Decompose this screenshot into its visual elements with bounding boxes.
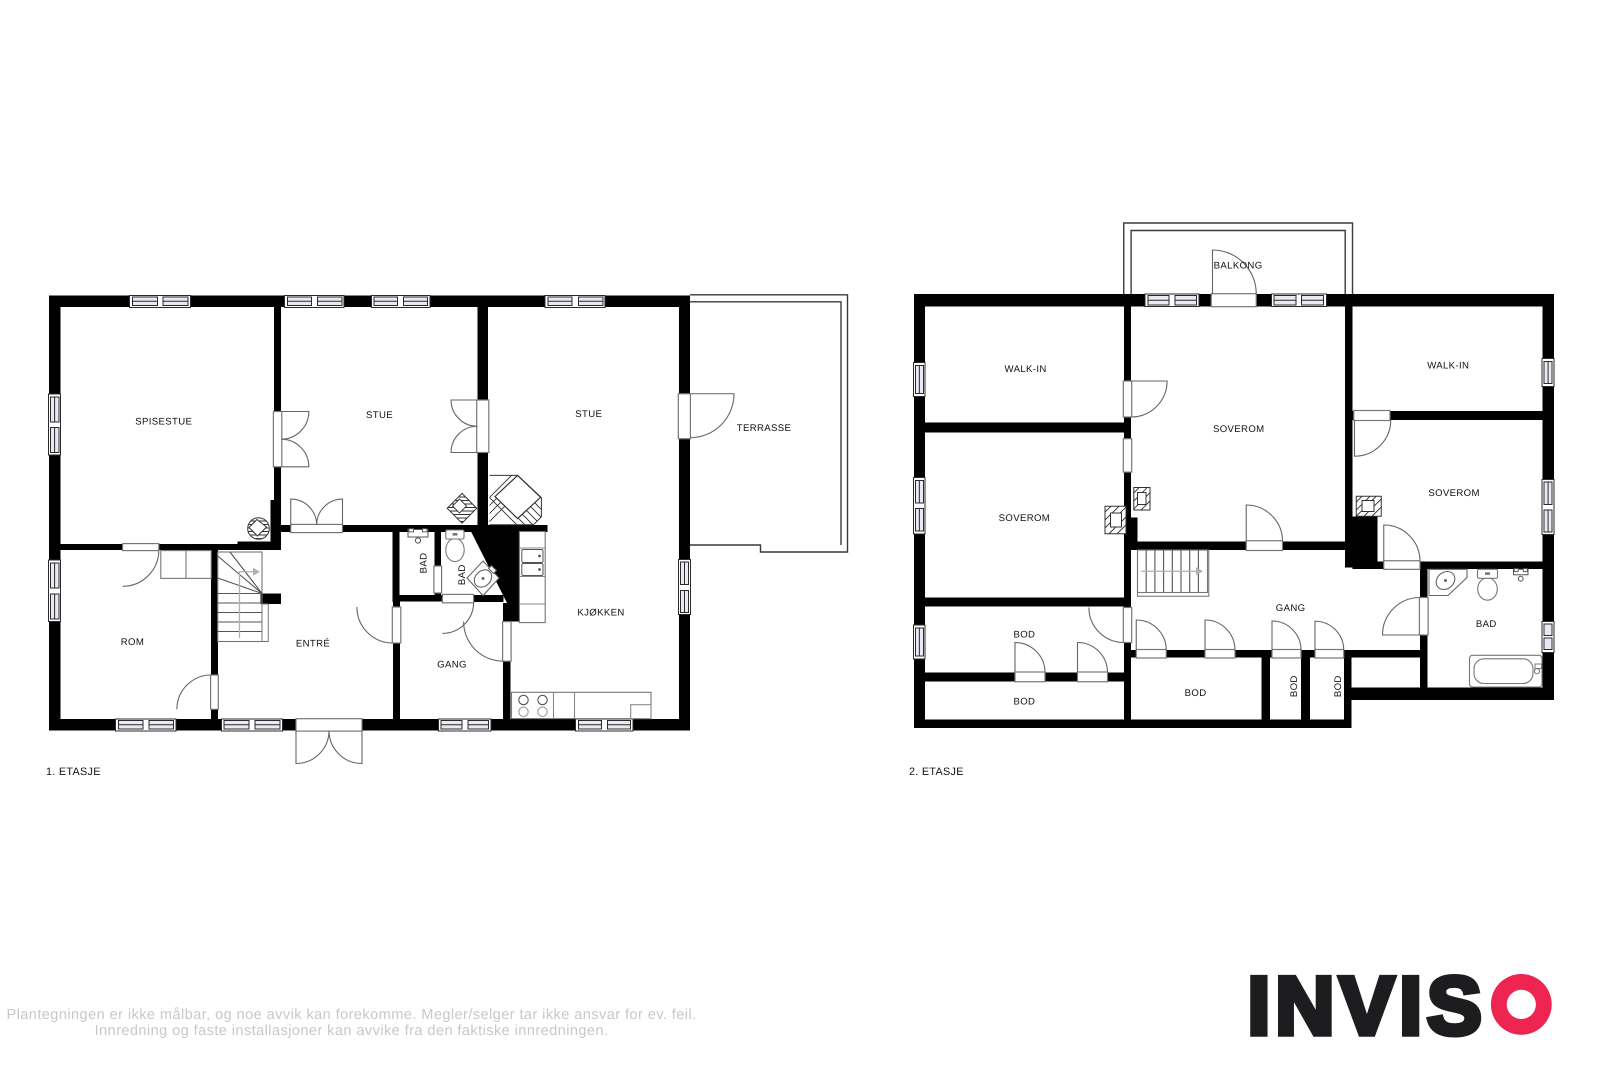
svg-text:1. ETASJE: 1. ETASJE <box>46 766 101 778</box>
svg-text:ROM: ROM <box>121 637 144 648</box>
svg-text:BAD: BAD <box>1476 619 1497 630</box>
svg-text:Plantegningen er ikke målbar,: Plantegningen er ikke målbar, og noe avv… <box>6 1007 696 1023</box>
svg-text:INVIS: INVIS <box>1248 961 1487 1052</box>
svg-text:2. ETASJE: 2. ETASJE <box>909 766 964 778</box>
svg-text:BOD: BOD <box>1333 675 1344 697</box>
svg-text:STUE: STUE <box>366 410 393 421</box>
svg-text:KJØKKEN: KJØKKEN <box>577 608 624 619</box>
svg-text:BAD: BAD <box>419 553 430 574</box>
svg-text:ENTRÉ: ENTRÉ <box>296 637 330 649</box>
svg-text:SOVEROM: SOVEROM <box>1213 424 1265 435</box>
svg-text:BALKONG: BALKONG <box>1214 260 1263 271</box>
svg-text:BOD: BOD <box>1289 675 1300 697</box>
svg-text:TERRASSE: TERRASSE <box>737 423 792 434</box>
svg-text:WALK-IN: WALK-IN <box>1427 360 1469 371</box>
svg-text:Innredning og faste installasj: Innredning og faste installasjoner kan a… <box>95 1023 609 1039</box>
svg-text:STUE: STUE <box>575 409 602 420</box>
svg-text:SOVEROM: SOVEROM <box>1428 488 1480 499</box>
svg-text:BAD: BAD <box>457 564 468 585</box>
svg-text:BOD: BOD <box>1013 629 1035 640</box>
svg-text:SOVEROM: SOVEROM <box>999 513 1051 524</box>
svg-text:SPISESTUE: SPISESTUE <box>135 416 192 427</box>
svg-text:GANG: GANG <box>1276 603 1306 614</box>
svg-text:WALK-IN: WALK-IN <box>1005 364 1047 375</box>
svg-text:GANG: GANG <box>437 659 467 670</box>
svg-text:BOD: BOD <box>1013 697 1035 708</box>
svg-text:BOD: BOD <box>1185 688 1207 699</box>
